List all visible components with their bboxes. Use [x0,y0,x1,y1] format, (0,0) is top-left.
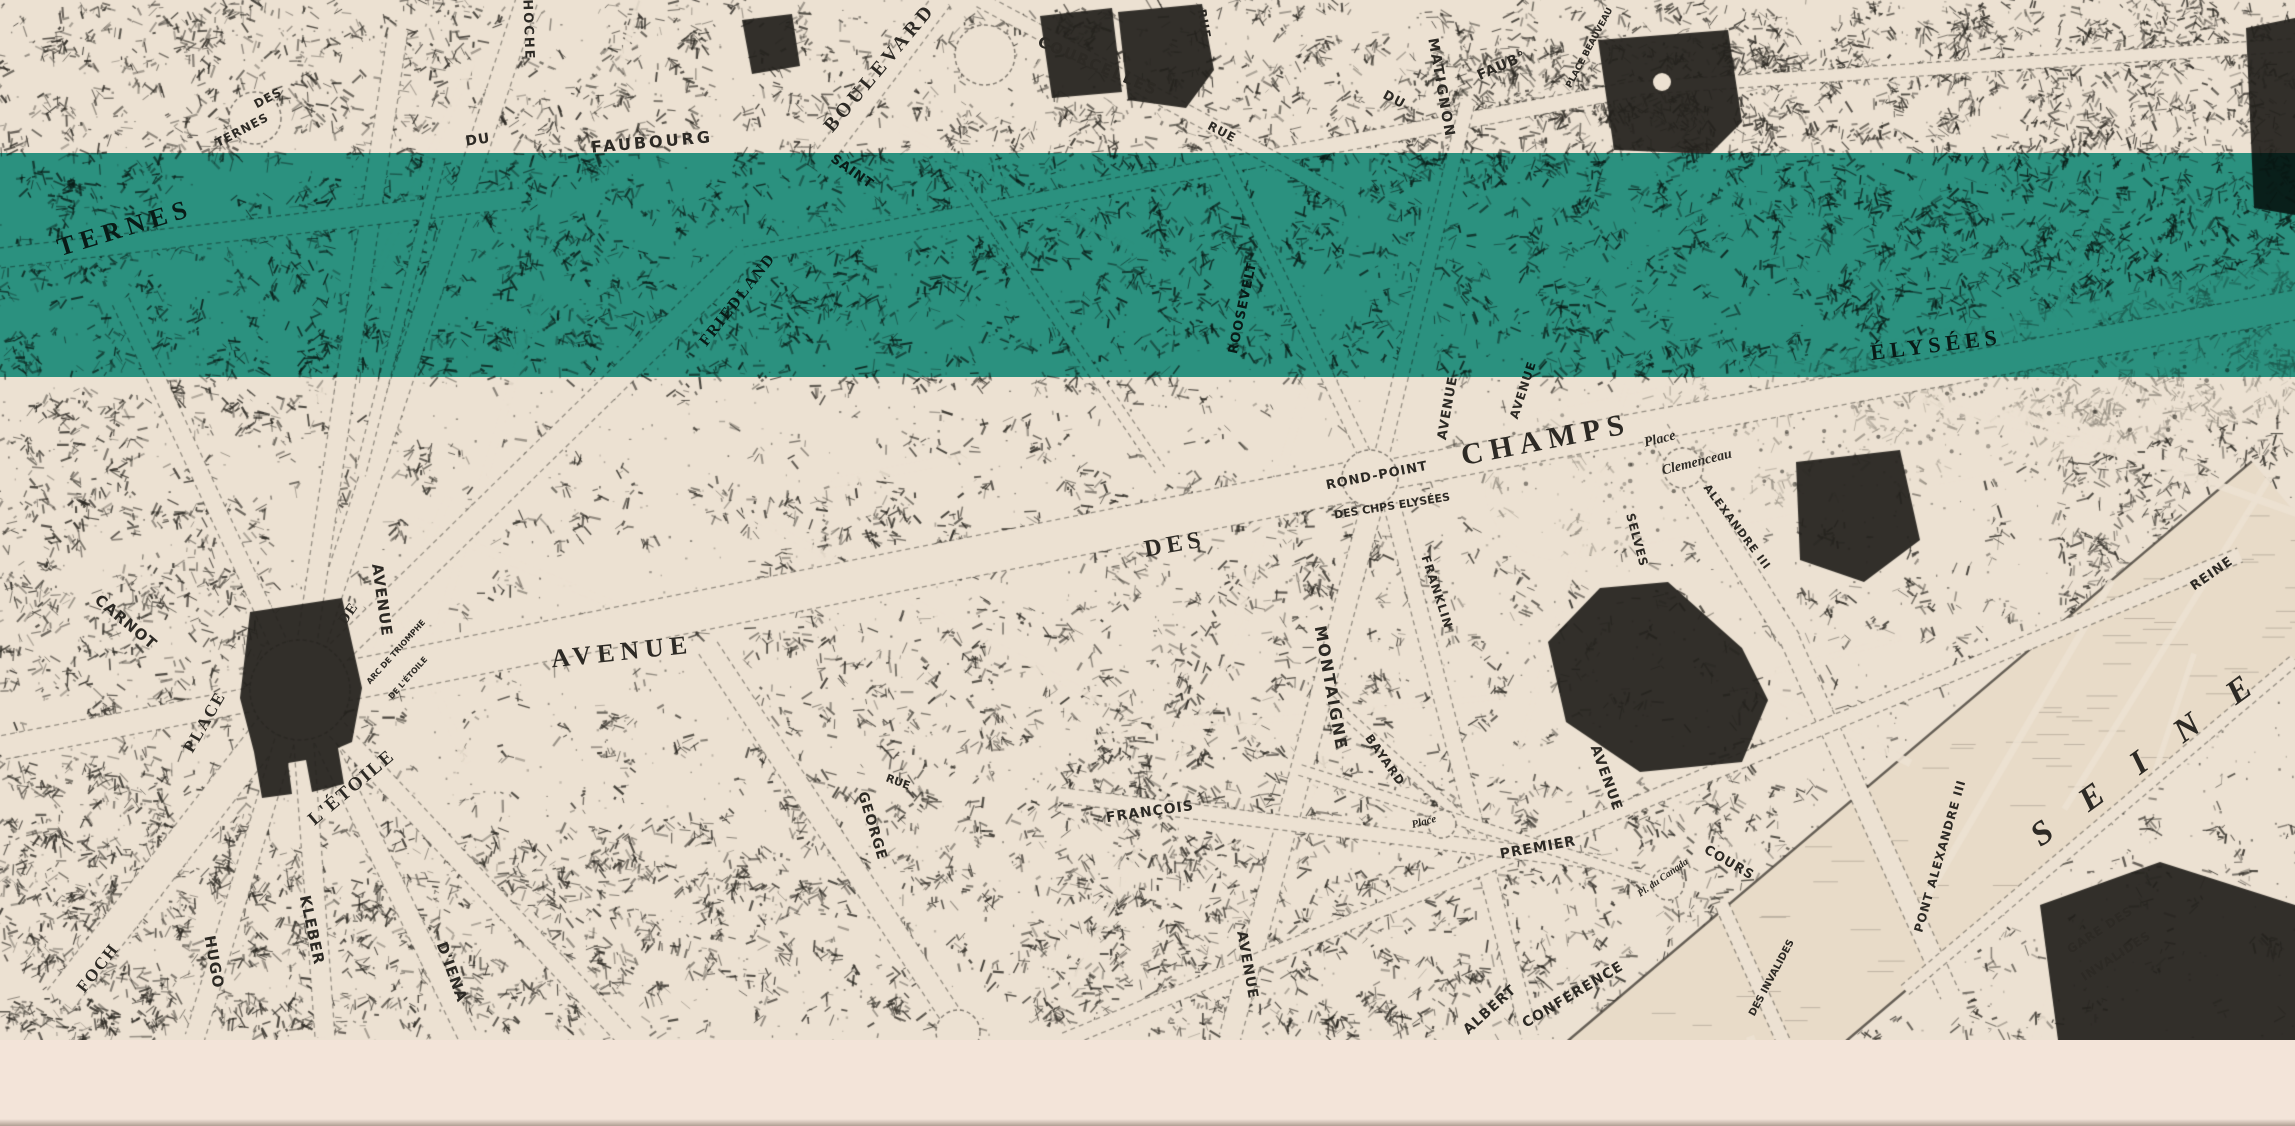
map-label-23: ROND-POINT [1325,459,1430,493]
map-label-56: S E I N E [2024,659,2273,854]
map-label-34: FOCH [73,939,124,996]
map-label-36: KLEBER [296,894,328,967]
map-label-26: AVENUE [550,630,695,675]
map-label-30: ARC DE TRIOMPHE [365,618,427,686]
map-label-32: CARNOT [91,591,161,653]
map-label-24: DES CHPS ELYSÉES [1333,490,1451,521]
map-label-47: AVENUE [1587,743,1626,813]
map-label-27: PLACE [179,688,230,757]
caption-bar: A GUSTATIVE VIEW OF EUROPE PART TWO BY H… [0,1040,2295,1126]
map-label-38: RUE [884,772,912,793]
map-label-22: Clemenceau [1660,447,1733,480]
map-label-43: MONTAIGNE [1311,624,1352,752]
map-label-12: MATIGNON [1424,37,1457,140]
map-label-2: TERNES [213,110,271,150]
map-label-0: TERNES [54,193,197,263]
map-label-10: RUE [1205,119,1238,146]
map-label-4: FAUBOURG [590,127,713,157]
magazine-map-spread: TERNESDESTERNESDUFAUBOURGSAINTHOCHEBOULE… [0,0,2295,1126]
map-label-18: AVENUE [1507,359,1539,420]
map-label-17: AVENUE [1435,375,1461,441]
map-label-6: HOCHE [519,0,536,61]
map-label-21: Place [1643,428,1678,451]
map-label-7: BOULEVARD [819,0,940,137]
map-label-1: DES [252,85,285,111]
map-label-45: FRANKLIN [1419,554,1456,631]
map-label-11: DU [1380,88,1408,112]
map-label-15: FRIEDLAND [696,250,780,350]
map-label-59: REINE [2188,554,2236,594]
map-label-16: ROOSEVELT [1226,261,1260,355]
map-label-5: SAINT [828,152,877,192]
map-label-35: HUGO [200,934,227,990]
map-label-33: AVENUE [368,562,396,637]
map-label-46: SELVES [1623,512,1651,569]
map-label-40: FRANÇOIS [1105,798,1195,826]
map-label-25: DES [1142,526,1207,563]
map-label-49: ALBERT [1460,982,1520,1038]
map-label-52: COURS [1701,843,1757,884]
map-label-48: AVENUE [1233,930,1261,1001]
map-label-42: PREMIER [1499,833,1578,862]
map-label-19: ÉLYSÉES [1869,324,2003,366]
map-label-39: GEORGE [854,790,890,862]
map-label-51: Pl. du Canada [1636,857,1691,900]
map-label-28: DE [335,600,362,628]
map-label-41: Place [1410,813,1437,831]
map-label-55: PONT ALEXANDRE III [1911,778,1968,934]
map-street-labels: TERNESDESTERNESDUFAUBOURGSAINTHOCHEBOULE… [0,0,2295,1040]
map-label-13: FAUB° [1475,48,1529,84]
page-bottom-edge [0,1119,2295,1126]
map-label-53: DES INVALIDES [1747,938,1797,1018]
map-label-44: BAYARD [1362,732,1407,789]
map-label-3: DU [465,130,492,149]
map-label-37: D'IENA [433,939,471,1004]
map-label-8: COURCELLES [1035,33,1161,100]
map-label-9: RUE [1194,8,1213,40]
map-label-20: CHAMPS [1458,407,1633,473]
map-label-54: ALEXANDRE III [1701,482,1774,572]
map-label-50: CONFERENCE [1520,959,1627,1032]
map-label-29: L'ÉTOILE [304,745,400,830]
map-label-14: PLACE BEAUVEAU [1565,6,1616,90]
